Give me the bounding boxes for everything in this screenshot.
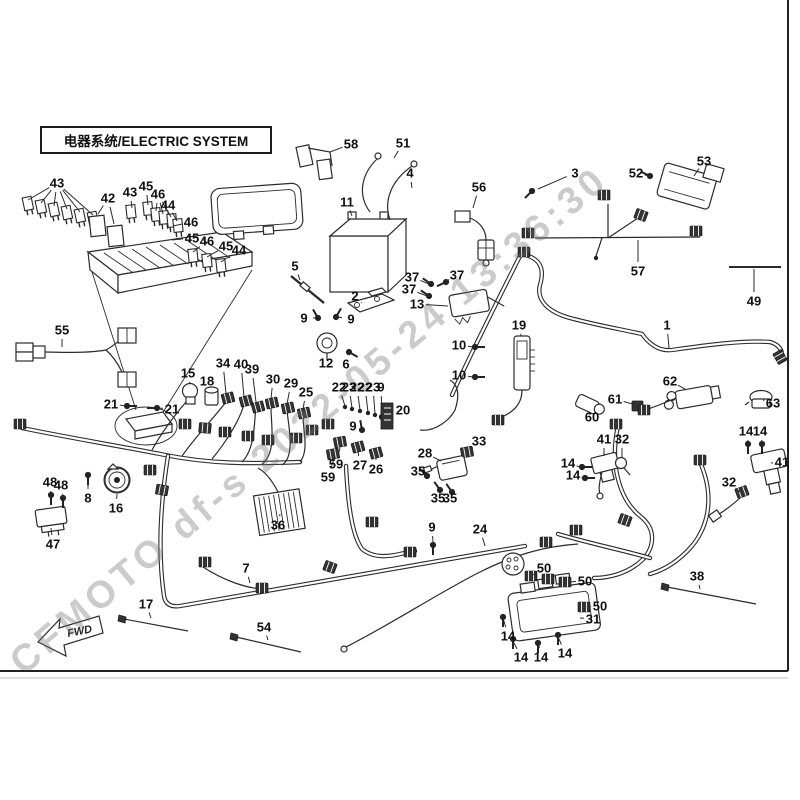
part-callout-21: 21: [165, 403, 179, 416]
part-callout-34: 34: [216, 357, 230, 370]
part-callout-44: 44: [161, 199, 175, 212]
part-callout-38: 38: [690, 570, 704, 583]
part-callout-25: 25: [299, 386, 313, 399]
part-callout-16: 16: [109, 502, 123, 515]
part-callout-14: 14: [753, 425, 767, 438]
callout-layer: 4342434546444645464544558514115635253574…: [0, 0, 800, 800]
part-callout-46: 46: [200, 235, 214, 248]
part-callout-12: 12: [319, 357, 333, 370]
part-callout-42: 42: [101, 192, 115, 205]
part-callout-41: 41: [597, 433, 611, 446]
part-callout-63: 63: [766, 397, 780, 410]
part-callout-31: 31: [586, 613, 600, 626]
part-callout-9: 9: [349, 420, 356, 433]
part-callout-41: 41: [775, 456, 789, 469]
part-callout-57: 57: [631, 265, 645, 278]
part-callout-29: 29: [284, 377, 298, 390]
part-callout-14: 14: [534, 651, 548, 664]
part-callout-37: 37: [450, 269, 464, 282]
part-callout-17: 17: [139, 598, 153, 611]
part-callout-4: 4: [406, 167, 413, 180]
title-box: 电器系统/ELECTRIC SYSTEM: [40, 126, 272, 154]
part-callout-52: 52: [629, 167, 643, 180]
part-callout-55: 55: [55, 324, 69, 337]
part-callout-13: 13: [410, 298, 424, 311]
part-callout-61: 61: [608, 393, 622, 406]
part-callout-14: 14: [739, 425, 753, 438]
part-callout-48: 48: [54, 479, 68, 492]
part-callout-36: 36: [271, 519, 285, 532]
part-callout-2: 2: [351, 290, 358, 303]
part-callout-3: 3: [571, 167, 578, 180]
part-callout-58: 58: [344, 138, 358, 151]
part-callout-11: 11: [340, 196, 354, 209]
part-callout-37: 37: [402, 283, 416, 296]
part-callout-35: 35: [443, 492, 457, 505]
part-callout-6: 6: [342, 358, 349, 371]
part-callout-14: 14: [514, 651, 528, 664]
part-callout-32: 32: [722, 476, 736, 489]
part-callout-44: 44: [232, 244, 246, 257]
part-callout-45: 45: [185, 232, 199, 245]
part-callout-14: 14: [501, 630, 515, 643]
part-callout-7: 7: [242, 562, 249, 575]
part-callout-62: 62: [663, 375, 677, 388]
part-callout-24: 24: [473, 523, 487, 536]
part-callout-56: 56: [472, 181, 486, 194]
diagram-title: 电器系统/ELECTRIC SYSTEM: [64, 130, 249, 150]
part-callout-9: 9: [428, 521, 435, 534]
part-callout-14: 14: [566, 469, 580, 482]
part-callout-1: 1: [663, 319, 670, 332]
part-callout-15: 15: [181, 367, 195, 380]
part-callout-47: 47: [46, 538, 60, 551]
part-callout-14: 14: [558, 647, 572, 660]
part-callout-54: 54: [257, 621, 271, 634]
part-callout-21: 21: [104, 398, 118, 411]
part-callout-35: 35: [411, 465, 425, 478]
part-callout-30: 30: [266, 373, 280, 386]
parts-diagram-sheet: FWD CFMOTO df-s 2022-05-24 13:36:30 电器系统…: [0, 0, 800, 800]
part-callout-18: 18: [200, 375, 214, 388]
part-callout-28: 28: [418, 447, 432, 460]
part-callout-10: 10: [452, 339, 466, 352]
part-callout-50: 50: [537, 562, 551, 575]
part-callout-20: 20: [396, 404, 410, 417]
part-callout-60: 60: [585, 411, 599, 424]
part-callout-39: 39: [245, 363, 259, 376]
part-callout-51: 51: [396, 137, 410, 150]
part-callout-59: 59: [321, 471, 335, 484]
part-callout-50: 50: [578, 575, 592, 588]
part-callout-32: 32: [615, 433, 629, 446]
part-callout-43: 43: [50, 177, 64, 190]
part-callout-26: 26: [369, 463, 383, 476]
part-callout-19: 19: [512, 319, 526, 332]
part-callout-9: 9: [300, 312, 307, 325]
part-callout-27: 27: [353, 459, 367, 472]
part-callout-43: 43: [123, 186, 137, 199]
part-callout-49: 49: [747, 295, 761, 308]
part-callout-10: 10: [452, 369, 466, 382]
part-callout-33: 33: [472, 435, 486, 448]
part-callout-8: 8: [84, 492, 91, 505]
part-callout-9: 9: [377, 381, 384, 394]
part-callout-46: 46: [184, 216, 198, 229]
part-callout-5: 5: [291, 260, 298, 273]
part-callout-9: 9: [347, 313, 354, 326]
part-callout-53: 53: [697, 155, 711, 168]
